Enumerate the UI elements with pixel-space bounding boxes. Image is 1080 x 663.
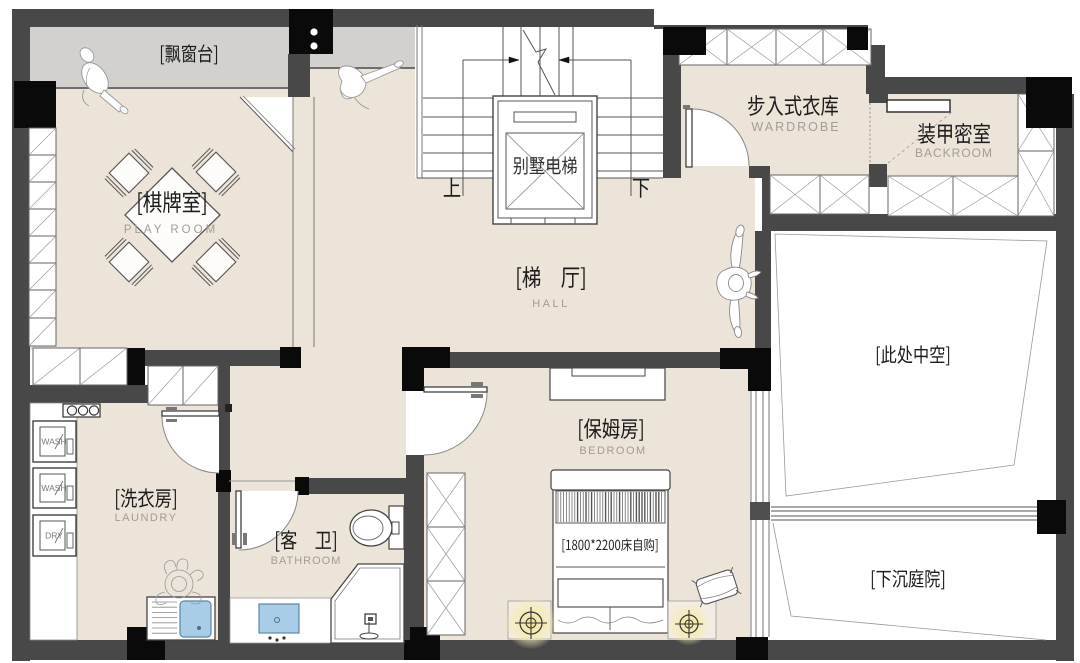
svg-text:WASH: WASH bbox=[41, 483, 66, 493]
svg-text:BATHROOM: BATHROOM bbox=[271, 555, 342, 567]
svg-text:HALL: HALL bbox=[532, 298, 570, 310]
svg-text:LAUNDRY: LAUNDRY bbox=[115, 512, 178, 524]
svg-text:WASH: WASH bbox=[41, 437, 66, 447]
svg-text:BEDROOM: BEDROOM bbox=[579, 445, 646, 457]
svg-text:WARDROBE: WARDROBE bbox=[751, 120, 840, 134]
svg-text:PLAY ROOM: PLAY ROOM bbox=[124, 224, 218, 236]
svg-text:BACKROOM: BACKROOM bbox=[915, 146, 993, 160]
svg-text:DRY: DRY bbox=[45, 531, 63, 541]
